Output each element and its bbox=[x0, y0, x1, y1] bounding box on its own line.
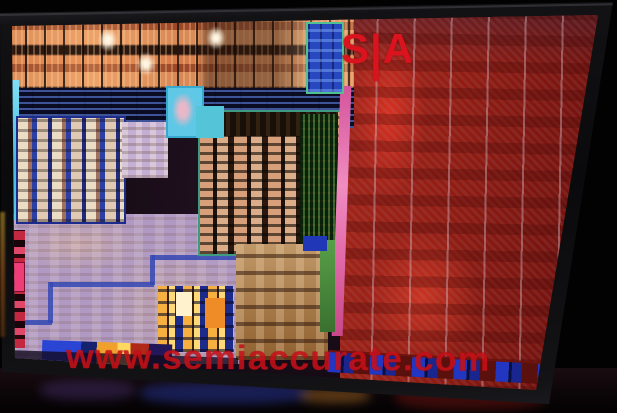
logo-letter-a: A bbox=[383, 28, 414, 70]
die-shot-photo: S|A www.semiaccurate.com bbox=[0, 0, 617, 413]
cpu-aux-block bbox=[122, 122, 168, 178]
bus-line bbox=[150, 255, 155, 285]
center-cyan-patch bbox=[196, 106, 224, 138]
orange-io-cell bbox=[205, 298, 225, 328]
logo-separator: | bbox=[370, 28, 383, 78]
bright-io-cell bbox=[176, 292, 192, 316]
small-blue-block bbox=[303, 236, 327, 251]
page: { "overlay": { "logo": { "s": "S", "pipe… bbox=[0, 0, 617, 413]
bus-line bbox=[48, 282, 53, 323]
green-strip bbox=[320, 240, 335, 332]
logo-letter-s: S bbox=[341, 28, 370, 70]
bezel-highlight bbox=[0, 3, 613, 16]
center-striped-column bbox=[300, 114, 338, 250]
bright-block bbox=[206, 26, 226, 50]
cpu-module-left bbox=[16, 116, 126, 224]
semiaccurate-logo: S|A bbox=[341, 28, 414, 70]
cyan-ip-block-core bbox=[173, 94, 193, 126]
bus-line bbox=[50, 282, 154, 287]
bright-block bbox=[98, 28, 118, 52]
blue-green-ip-block bbox=[306, 22, 344, 94]
bezel-edge-glint bbox=[0, 212, 5, 337]
reflection-blob bbox=[40, 380, 135, 400]
watermark-text: www.semiaccurate.com bbox=[66, 340, 491, 377]
bright-block bbox=[136, 52, 156, 76]
